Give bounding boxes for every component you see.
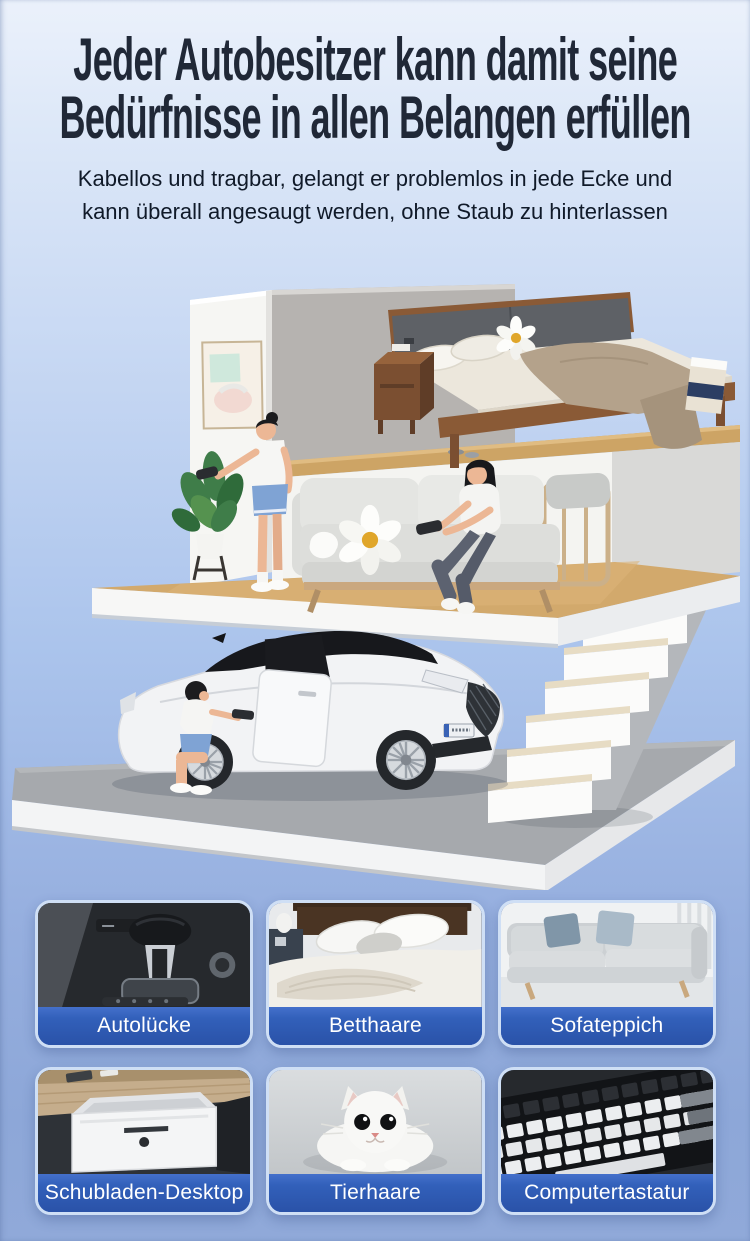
tile-betthaare: Betthaare — [266, 900, 484, 1048]
desk-drawer-photo — [38, 1070, 250, 1174]
tile-label: Sofateppich — [501, 1007, 713, 1045]
keyboard-photo — [501, 1070, 713, 1174]
wall-picture — [202, 341, 262, 428]
page-title: Jeder Autobesitzer kann damit seine Bedü… — [0, 30, 750, 146]
gray-sofa-photo — [501, 903, 713, 1007]
title-line-2: Bedürfnisse in allen Belangen erfüllen — [59, 83, 690, 152]
tile-autoluecke: Autolücke — [35, 900, 253, 1048]
use-case-grid: Autolücke Bett — [35, 900, 716, 1215]
white-sedan-car — [112, 629, 508, 801]
header: Jeder Autobesitzer kann damit seine Bedü… — [0, 30, 750, 228]
tile-schubladen-desktop: Schubladen-Desktop — [35, 1067, 253, 1215]
bed-blanket-photo — [269, 903, 481, 1007]
tile-label: Schubladen-Desktop — [38, 1174, 250, 1212]
car-console-photo — [38, 903, 250, 1007]
white-cat-photo — [269, 1070, 481, 1174]
subtitle-line-2: kann überall angesaugt werden, ohne Stau… — [0, 195, 750, 228]
subtitle-line-1: Kabellos und tragbar, gelangt er problem… — [0, 162, 750, 195]
tile-label: Betthaare — [269, 1007, 481, 1045]
tile-label: Computertastatur — [501, 1174, 713, 1212]
tile-sofateppich: Sofateppich — [498, 900, 716, 1048]
tile-label: Autolücke — [38, 1007, 250, 1045]
tile-computertastatur: Computertastatur — [498, 1067, 716, 1215]
laundry-basket — [685, 357, 727, 414]
ad-page: Jeder Autobesitzer kann damit seine Bedü… — [0, 0, 750, 1241]
tile-label: Tierhaare — [269, 1174, 481, 1212]
subtitle: Kabellos und tragbar, gelangt er problem… — [0, 162, 750, 228]
tile-tierhaare: Tierhaare — [266, 1067, 484, 1215]
isometric-house-illustration — [0, 272, 750, 890]
